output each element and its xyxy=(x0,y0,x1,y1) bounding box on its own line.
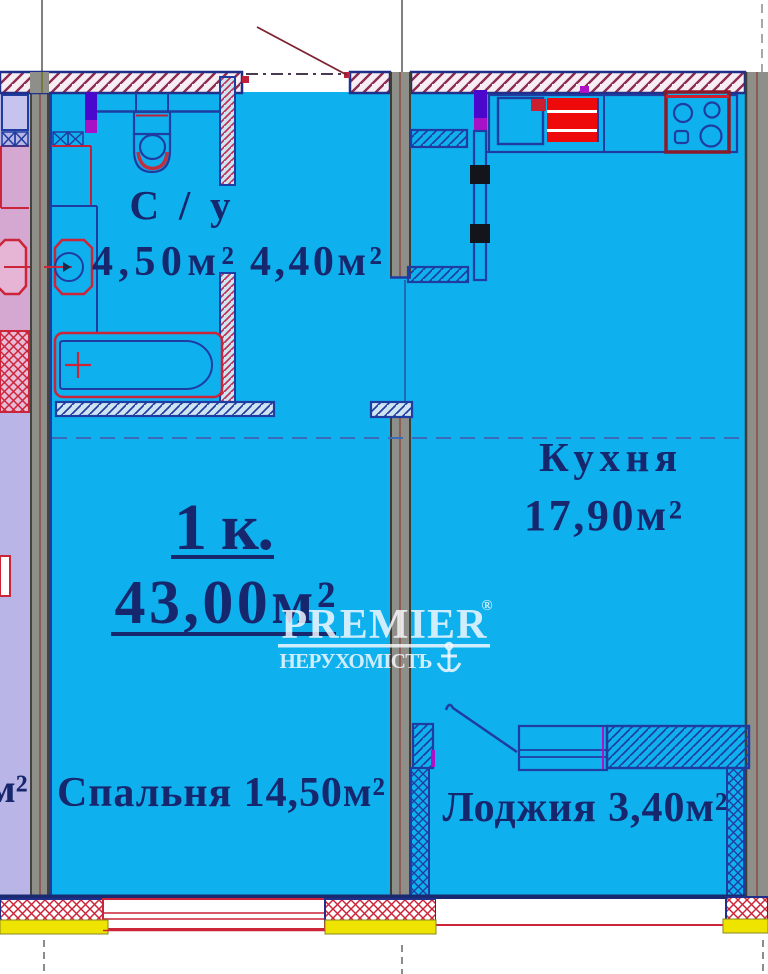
svg-text:НЕРУХОМІСТЬ: НЕРУХОМІСТЬ xyxy=(280,649,433,673)
svg-text:4,40м²: 4,40м² xyxy=(250,239,382,285)
svg-text:17,90м²: 17,90м² xyxy=(524,491,682,540)
svg-text:1 к.: 1 к. xyxy=(174,491,274,564)
svg-text:®: ® xyxy=(481,598,492,614)
svg-text:PREMIER: PREMIER xyxy=(282,602,488,648)
svg-text:Спальня 14,50м²: Спальня 14,50м² xyxy=(57,770,385,816)
svg-text:Лоджия 3,40м²: Лоджия 3,40м² xyxy=(443,785,728,831)
svg-text:м²: м² xyxy=(0,766,28,811)
svg-text:С/у: С/у xyxy=(130,182,232,228)
svg-text:Кухня: Кухня xyxy=(539,434,677,480)
